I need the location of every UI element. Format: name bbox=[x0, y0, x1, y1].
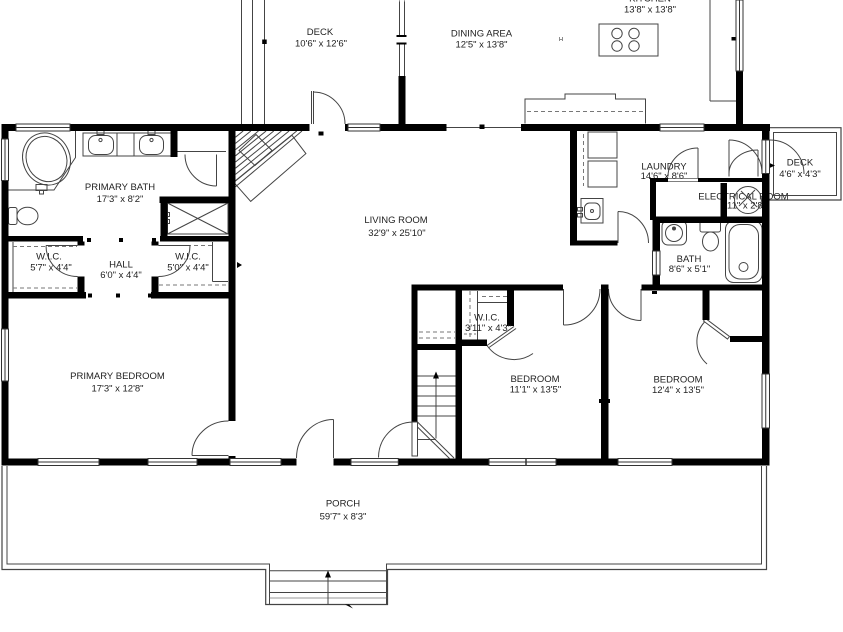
svg-text:5'0" x 4'4": 5'0" x 4'4" bbox=[167, 262, 209, 273]
svg-text:4'6" x 4'3": 4'6" x 4'3" bbox=[779, 169, 821, 180]
svg-text:LIVING ROOM: LIVING ROOM bbox=[364, 215, 427, 226]
svg-text:PRIMARY BATH: PRIMARY BATH bbox=[85, 182, 155, 193]
svg-text:LAUNDRY: LAUNDRY bbox=[641, 161, 687, 172]
svg-text:DECK: DECK bbox=[307, 27, 334, 38]
svg-text:32'9" x 25'10": 32'9" x 25'10" bbox=[368, 228, 425, 239]
svg-text:17'3" x 12'8": 17'3" x 12'8" bbox=[91, 383, 143, 394]
svg-text:BEDROOM: BEDROOM bbox=[653, 374, 702, 385]
svg-text:DINING AREA: DINING AREA bbox=[451, 28, 513, 39]
svg-text:12'5" x 13'8": 12'5" x 13'8" bbox=[455, 39, 507, 50]
svg-text:DECK: DECK bbox=[787, 157, 814, 168]
svg-text:17'3" x 8'2": 17'3" x 8'2" bbox=[97, 194, 144, 205]
svg-text:BEDROOM: BEDROOM bbox=[510, 374, 559, 385]
svg-text:H: H bbox=[559, 37, 563, 43]
svg-text:PRIMARY BEDROOM: PRIMARY BEDROOM bbox=[70, 371, 165, 382]
svg-text:PORCH: PORCH bbox=[326, 498, 360, 509]
svg-text:W.I.C.: W.I.C. bbox=[36, 251, 62, 262]
svg-text:11'1" x 13'5": 11'1" x 13'5" bbox=[510, 384, 561, 395]
svg-text:12'4" x 13'5": 12'4" x 13'5" bbox=[652, 385, 704, 396]
svg-text:10'6" x 12'6": 10'6" x 12'6" bbox=[295, 38, 347, 49]
svg-text:3'11" x 4'3": 3'11" x 4'3" bbox=[465, 323, 511, 334]
svg-text:8'6" x 5'1": 8'6" x 5'1" bbox=[669, 264, 711, 275]
svg-text:59'7" x 8'3": 59'7" x 8'3" bbox=[320, 511, 367, 522]
svg-text:W.I.C.: W.I.C. bbox=[175, 251, 201, 262]
svg-text:13'8" x 13'8": 13'8" x 13'8" bbox=[624, 4, 676, 15]
svg-text:W.I.C.: W.I.C. bbox=[474, 312, 500, 323]
svg-text:6'0" x 4'4": 6'0" x 4'4" bbox=[100, 270, 142, 281]
svg-text:5'7" x 4'4": 5'7" x 4'4" bbox=[30, 262, 72, 273]
